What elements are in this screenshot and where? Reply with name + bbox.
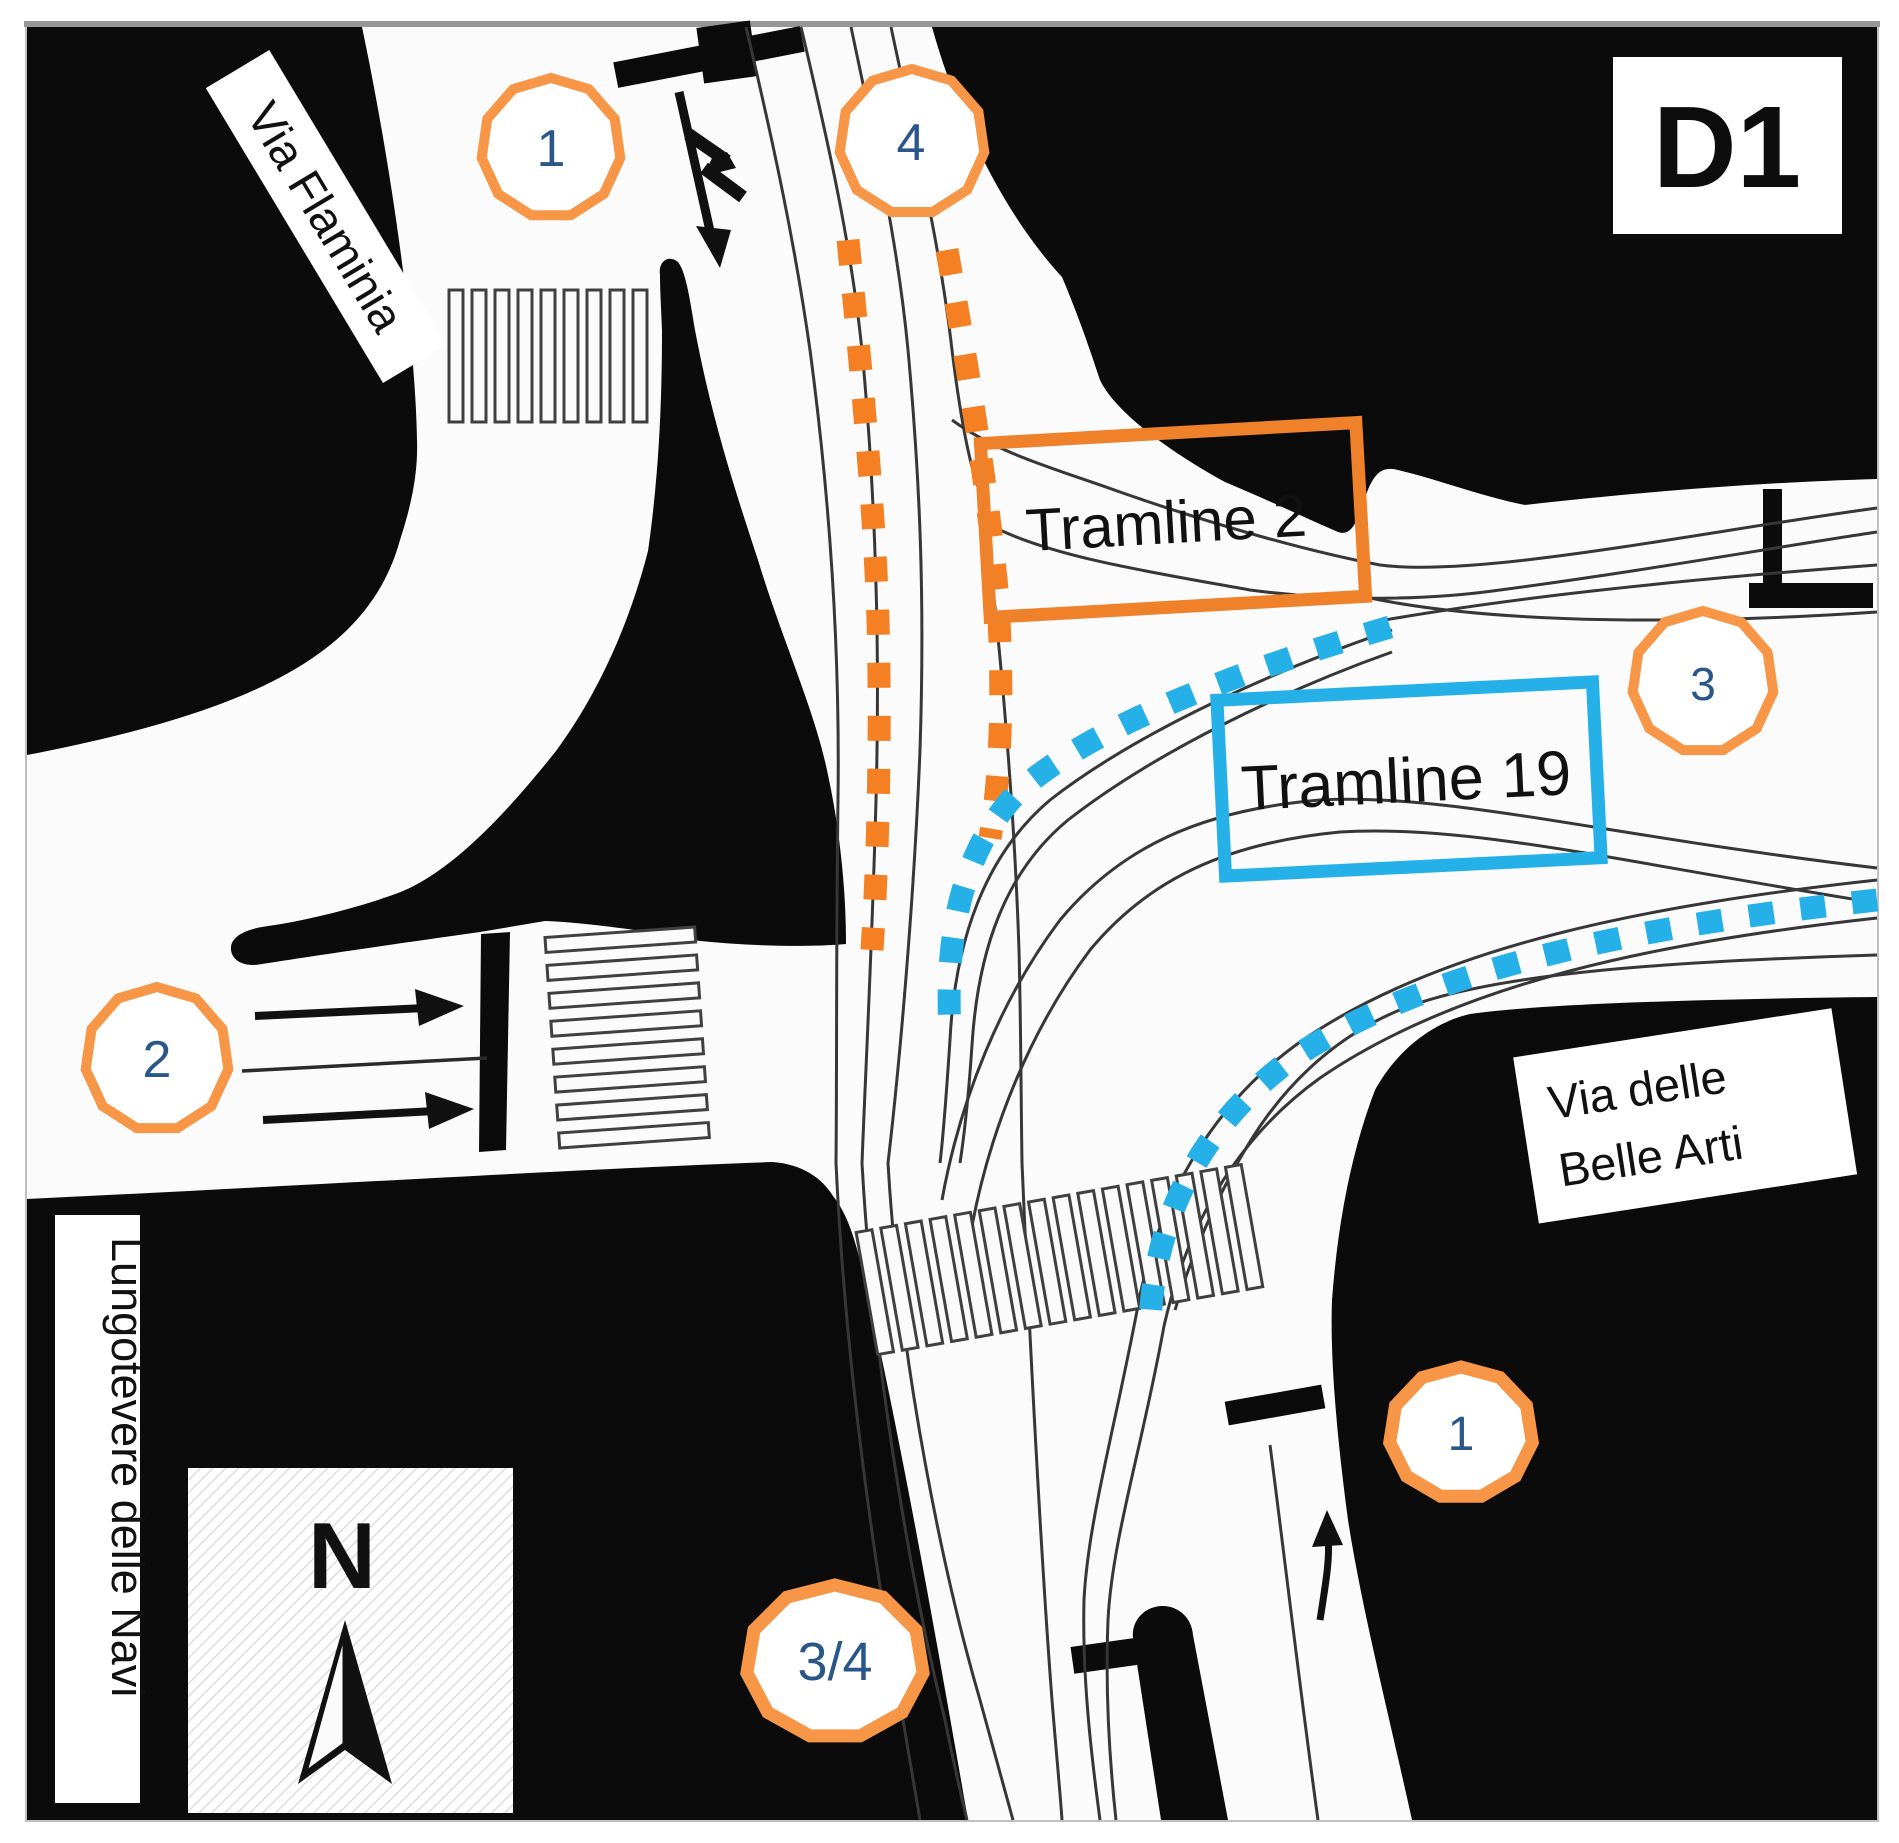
svg-text:N: N bbox=[308, 1503, 376, 1608]
svg-text:4: 4 bbox=[897, 114, 926, 172]
svg-text:D1: D1 bbox=[1653, 82, 1801, 212]
svg-text:3/4: 3/4 bbox=[797, 1632, 872, 1692]
svg-text:1: 1 bbox=[537, 120, 566, 178]
svg-text:Lungotevere delle Navi: Lungotevere delle Navi bbox=[102, 1237, 153, 1697]
svg-text:1: 1 bbox=[1448, 1408, 1475, 1461]
svg-text:2: 2 bbox=[143, 1031, 172, 1089]
svg-text:3: 3 bbox=[1690, 658, 1716, 710]
